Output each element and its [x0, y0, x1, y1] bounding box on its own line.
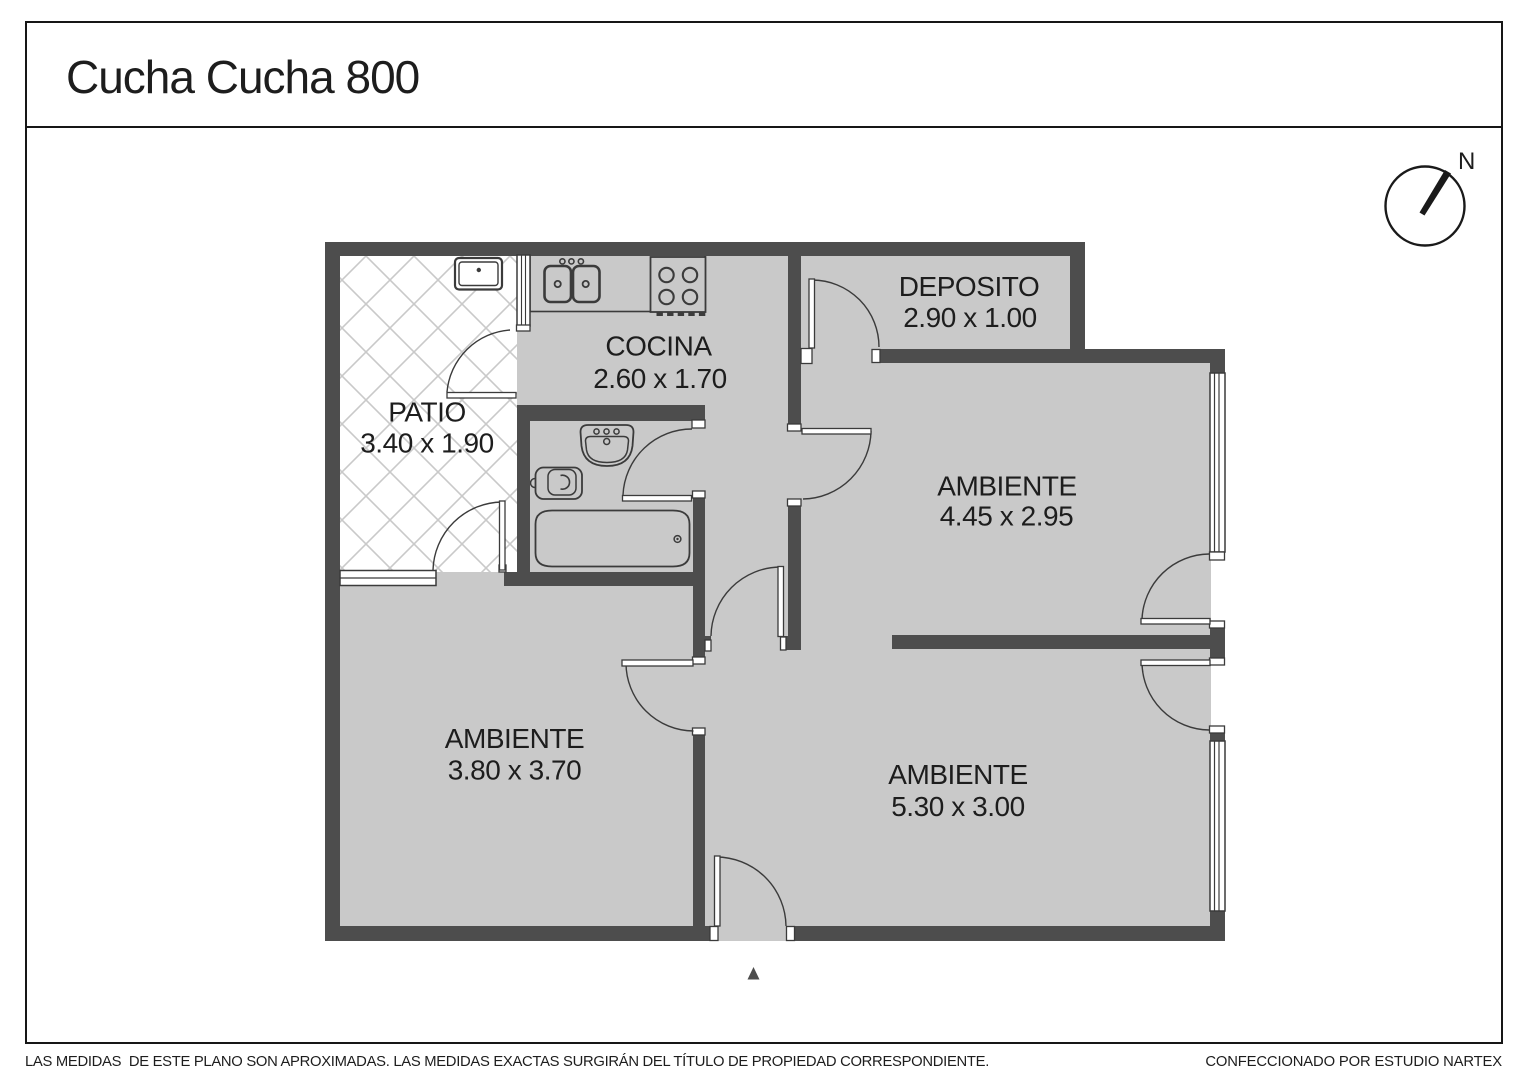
svg-text:3.40 x 1.90: 3.40 x 1.90	[360, 428, 494, 459]
svg-text:5.30 x 3.00: 5.30 x 3.00	[891, 791, 1025, 822]
svg-text:Cucha Cucha 800: Cucha Cucha 800	[66, 51, 419, 103]
svg-text:AMBIENTE: AMBIENTE	[937, 471, 1077, 502]
svg-text:2.90 x 1.00: 2.90 x 1.00	[903, 302, 1037, 333]
svg-text:AMBIENTE: AMBIENTE	[888, 759, 1028, 790]
svg-text:DEPOSITO: DEPOSITO	[899, 271, 1040, 302]
svg-text:COCINA: COCINA	[605, 331, 712, 362]
svg-text:LAS MEDIDAS DE ESTE PLANO SON: LAS MEDIDAS DE ESTE PLANO SON APROXIMADA…	[25, 1053, 989, 1070]
svg-text:PATIO: PATIO	[388, 397, 466, 428]
svg-text:3.80 x 3.70: 3.80 x 3.70	[448, 755, 582, 786]
svg-text:N: N	[1458, 148, 1475, 175]
svg-text:AMBIENTE: AMBIENTE	[445, 723, 585, 754]
svg-text:4.45 x 2.95: 4.45 x 2.95	[940, 501, 1074, 532]
svg-text:2.60 x 1.70: 2.60 x 1.70	[593, 363, 727, 394]
svg-text:CONFECCIONADO POR ESTUDIO NART: CONFECCIONADO POR ESTUDIO NARTEX	[1205, 1054, 1502, 1070]
